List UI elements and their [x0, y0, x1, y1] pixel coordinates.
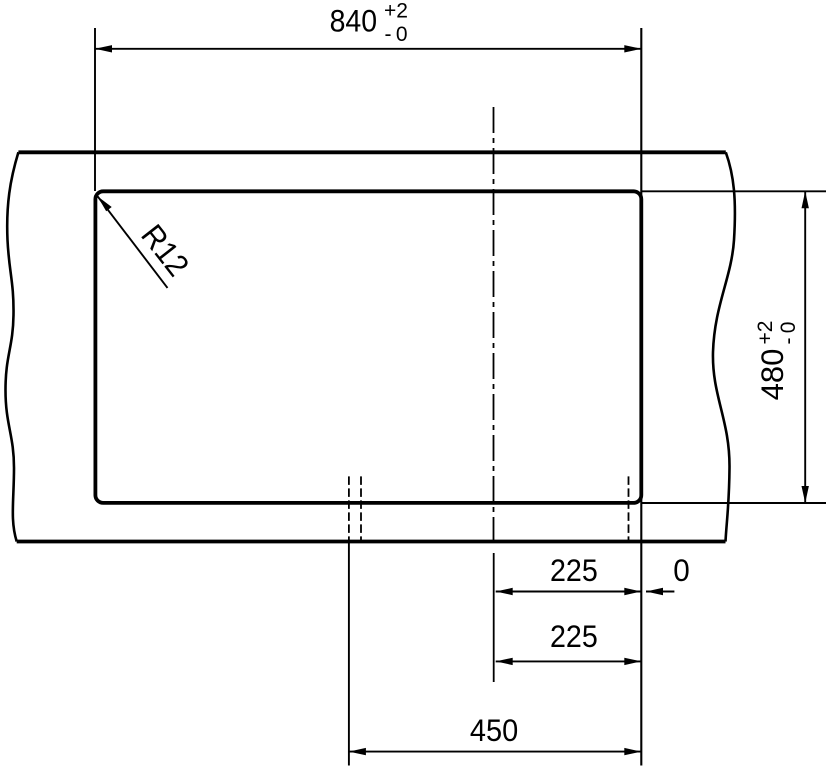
svg-text:480: 480	[754, 349, 790, 401]
svg-text:-0: -0	[385, 23, 408, 46]
svg-text:450: 450	[470, 712, 518, 748]
svg-text:225: 225	[550, 618, 598, 654]
svg-text:840: 840	[330, 2, 378, 38]
svg-text:-0: -0	[777, 322, 800, 345]
svg-text:0: 0	[673, 552, 690, 588]
svg-text:+2: +2	[754, 321, 777, 345]
svg-text:+2: +2	[384, 0, 408, 23]
svg-text:225: 225	[550, 552, 598, 588]
